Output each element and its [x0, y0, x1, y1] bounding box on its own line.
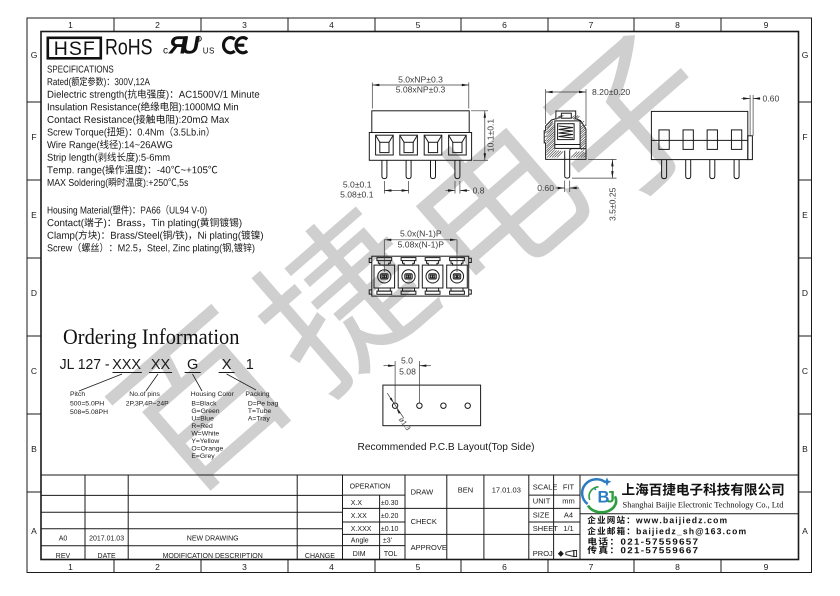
svg-text:5.0: 5.0	[401, 356, 413, 366]
svg-text:UNIT: UNIT	[533, 497, 551, 506]
svg-text:B: B	[598, 489, 610, 507]
svg-text:CHANGE: CHANGE	[305, 553, 335, 560]
svg-text:5.0xNP±0.3: 5.0xNP±0.3	[398, 75, 443, 85]
svg-text:X.X: X.X	[351, 500, 363, 507]
svg-text:TOL: TOL	[384, 551, 398, 558]
svg-text:Y=Yellow: Y=Yellow	[191, 438, 219, 445]
svg-text:R: R	[197, 36, 200, 41]
svg-text:D: D	[802, 288, 808, 298]
svg-text:6: 6	[502, 562, 507, 572]
svg-text:PROJ.: PROJ.	[533, 549, 555, 558]
svg-text:8: 8	[675, 20, 680, 30]
svg-text:7: 7	[589, 562, 594, 572]
svg-text:E: E	[31, 210, 37, 220]
svg-text:5.08±0.1: 5.08±0.1	[340, 190, 374, 200]
svg-text:Recommended P.C.B Layout(Top: Recommended P.C.B Layout(Top Side)	[357, 442, 534, 453]
svg-text:Ordering Information: Ordering Information	[63, 324, 240, 349]
svg-text:Pitch: Pitch	[70, 391, 85, 398]
svg-text:2017.01.03: 2017.01.03	[89, 536, 124, 543]
svg-text:JL 127 -: JL 127 -	[60, 357, 110, 373]
svg-text:Packing: Packing	[245, 391, 269, 398]
svg-text:FIT: FIT	[563, 483, 575, 492]
svg-text:3: 3	[242, 562, 247, 572]
svg-text:c: c	[163, 46, 168, 57]
svg-text:Shanghai Baijie Electronic Tec: Shanghai Baijie Electronic Technology Co…	[623, 501, 785, 510]
svg-text:0.8: 0.8	[473, 186, 485, 196]
svg-text:3.5±0.25: 3.5±0.25	[608, 187, 618, 221]
svg-text:MODIFICATION DESCRIPTION: MODIFICATION DESCRIPTION	[163, 553, 263, 560]
svg-text:A4: A4	[564, 511, 573, 520]
svg-text:F: F	[802, 132, 807, 142]
svg-text:5.08xNP±0.3: 5.08xNP±0.3	[396, 85, 446, 95]
svg-text:±0.10: ±0.10	[381, 526, 399, 533]
svg-text:508=5.08PH: 508=5.08PH	[70, 409, 108, 416]
svg-text:7: 7	[589, 20, 594, 30]
svg-text:X: X	[222, 357, 232, 373]
svg-text:XX: XX	[151, 357, 171, 373]
svg-text:APPROVE: APPROVE	[411, 543, 447, 552]
svg-text:DATE: DATE	[98, 553, 116, 560]
svg-text:A=Tray: A=Tray	[248, 416, 270, 423]
svg-text:1: 1	[246, 357, 254, 373]
svg-text:2: 2	[155, 20, 160, 30]
svg-text:10.1±0.1: 10.1±0.1	[486, 119, 496, 153]
svg-text:5.0±0.1: 5.0±0.1	[343, 180, 372, 190]
svg-text:5: 5	[416, 20, 421, 30]
svg-text:C: C	[31, 366, 37, 376]
svg-text:G=Green: G=Green	[191, 408, 219, 415]
svg-text:T=Tube: T=Tube	[248, 408, 272, 415]
svg-text:500=5.0PH: 500=5.0PH	[70, 401, 104, 408]
svg-text:B=Black: B=Black	[191, 401, 217, 408]
svg-text:E: E	[802, 210, 808, 220]
svg-text:9: 9	[764, 562, 769, 572]
svg-text:8: 8	[675, 562, 680, 572]
svg-text:NEW DRAWING: NEW DRAWING	[187, 536, 239, 543]
svg-text:BEN: BEN	[458, 486, 473, 495]
svg-text:OPERATION: OPERATION	[350, 484, 391, 491]
svg-text:CHECK: CHECK	[411, 517, 437, 526]
svg-text:X.XX: X.XX	[351, 513, 367, 520]
svg-text:U=Blue: U=Blue	[191, 416, 214, 423]
svg-text:5.08: 5.08	[399, 367, 416, 377]
svg-text:No.of pins: No.of pins	[129, 391, 160, 398]
svg-text:1/1: 1/1	[563, 524, 573, 533]
svg-text:Angle: Angle	[351, 538, 369, 545]
svg-text:W=White: W=White	[191, 431, 219, 438]
svg-text:G: G	[802, 50, 809, 60]
svg-text:R=Red: R=Red	[191, 423, 213, 430]
svg-text:Housing Color: Housing Color	[191, 391, 235, 398]
svg-text:4: 4	[329, 562, 334, 572]
svg-text:9: 9	[764, 20, 769, 30]
svg-text:US: US	[203, 47, 215, 56]
svg-text:2: 2	[155, 562, 160, 572]
svg-text:1: 1	[68, 562, 73, 572]
svg-text:±3': ±3'	[383, 538, 392, 545]
svg-text:1: 1	[68, 20, 73, 30]
svg-text:B: B	[31, 444, 37, 454]
svg-text:ø1.3: ø1.3	[397, 415, 413, 432]
svg-text:A0: A0	[59, 536, 68, 543]
svg-text:DIM: DIM	[353, 551, 366, 558]
svg-text:A: A	[802, 526, 808, 536]
svg-text:DRAW: DRAW	[411, 488, 435, 497]
svg-text:A: A	[31, 526, 37, 536]
svg-text:17.01.03: 17.01.03	[492, 486, 521, 495]
svg-text:C: C	[802, 366, 808, 376]
svg-text:6: 6	[502, 20, 507, 30]
svg-text:E=Grey: E=Grey	[191, 453, 215, 460]
svg-text:SCALE: SCALE	[533, 483, 558, 492]
svg-text:±0.20: ±0.20	[381, 513, 399, 520]
svg-text:mm: mm	[562, 497, 575, 506]
svg-text:SIZE: SIZE	[533, 511, 550, 520]
svg-text:D: D	[31, 288, 37, 298]
svg-text:B: B	[802, 444, 808, 454]
svg-text:HSF: HSF	[54, 38, 96, 60]
svg-text:SHEET: SHEET	[533, 524, 558, 533]
svg-text:2P,3P,4P~24P: 2P,3P,4P~24P	[126, 401, 169, 408]
svg-text:XXX: XXX	[112, 357, 141, 373]
svg-text:G: G	[187, 357, 198, 373]
svg-text:REV: REV	[56, 553, 71, 560]
svg-text:5.08x(N-1)P: 5.08x(N-1)P	[398, 240, 445, 250]
svg-text:RoHS: RoHS	[105, 35, 153, 60]
svg-text:4: 4	[329, 20, 334, 30]
svg-text:0.60: 0.60	[763, 94, 780, 104]
svg-text:0.60: 0.60	[537, 183, 554, 193]
svg-text:3: 3	[242, 20, 247, 30]
svg-text:G: G	[31, 50, 38, 60]
svg-text:8.20±0.20: 8.20±0.20	[592, 87, 630, 97]
svg-text:±0.30: ±0.30	[381, 500, 399, 507]
svg-text:F: F	[31, 132, 36, 142]
svg-text:O=Orange: O=Orange	[191, 446, 223, 453]
svg-text:D=Pe bag: D=Pe bag	[248, 401, 279, 408]
svg-text:5: 5	[416, 562, 421, 572]
svg-text:5.0x(N-1)P: 5.0x(N-1)P	[400, 229, 442, 239]
svg-text:X.XXX: X.XXX	[351, 526, 372, 533]
